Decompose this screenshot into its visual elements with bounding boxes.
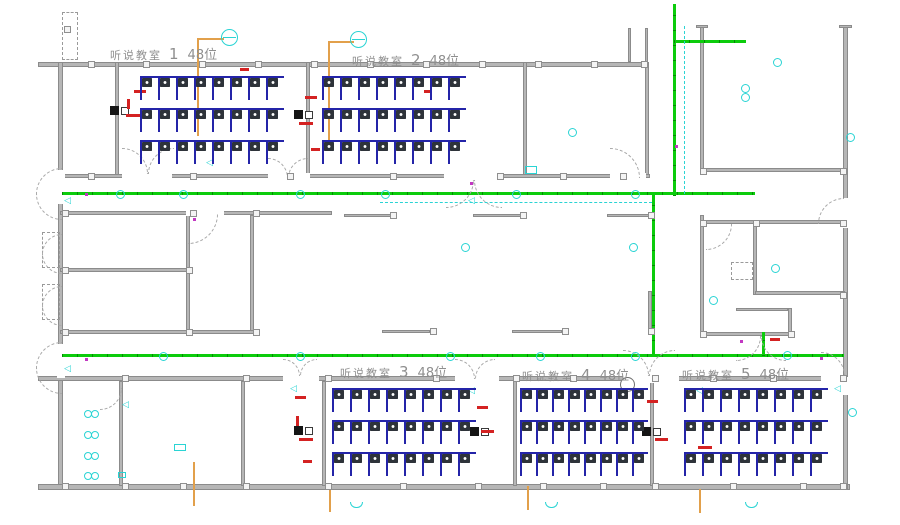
chair-icon <box>794 390 804 399</box>
column-marker <box>641 61 648 68</box>
wall <box>115 62 119 178</box>
desk-unit <box>536 390 550 412</box>
chair-icon <box>232 110 242 119</box>
desk-unit <box>738 454 754 476</box>
chair-icon <box>178 78 188 87</box>
column-marker <box>648 328 655 335</box>
desk-row <box>684 388 828 412</box>
desk-unit <box>194 142 210 164</box>
room-name: 听说教室 <box>110 49 162 62</box>
desk-unit <box>458 454 474 476</box>
detector-icon <box>296 190 305 199</box>
column-marker <box>253 210 260 217</box>
column-marker <box>535 61 542 68</box>
chair-icon <box>432 142 442 151</box>
column-marker <box>190 210 197 217</box>
door-swing-arc <box>706 224 732 250</box>
desk-row <box>140 76 284 100</box>
chair-icon <box>794 454 804 463</box>
chair-icon <box>352 454 362 463</box>
chair-icon <box>722 454 732 463</box>
door-swing-arc <box>475 359 495 379</box>
desk-unit <box>358 142 374 164</box>
chair-icon <box>406 390 416 399</box>
column-marker <box>390 173 397 180</box>
desk-unit <box>552 390 566 412</box>
desk-unit <box>600 390 614 412</box>
chair-icon <box>722 390 732 399</box>
door-triangle-icon: ◁ <box>64 364 74 374</box>
room-seats: 48位 <box>600 369 630 384</box>
desk-unit <box>404 390 420 412</box>
column-marker <box>325 375 332 382</box>
circuit-annotation-mark <box>296 416 299 426</box>
chair-icon <box>460 390 470 399</box>
desk-unit <box>322 110 338 132</box>
hinge-dot <box>820 357 823 360</box>
chair-icon <box>570 422 580 431</box>
desk-row <box>520 420 648 444</box>
column-marker <box>62 329 69 336</box>
desk-unit <box>394 110 410 132</box>
chair-icon <box>758 454 768 463</box>
chair-icon <box>352 390 362 399</box>
desk-unit <box>368 390 384 412</box>
desk-unit <box>412 78 428 100</box>
chair-icon <box>352 422 362 431</box>
desk-row <box>520 452 648 476</box>
circuit-annotation-mark <box>311 148 320 151</box>
desk-unit <box>412 142 428 164</box>
desk-unit <box>774 454 790 476</box>
desk-unit <box>248 78 264 100</box>
chair-icon <box>370 390 380 399</box>
wall <box>38 484 850 490</box>
desk-unit <box>230 78 246 100</box>
desk-unit <box>358 78 374 100</box>
desk-unit <box>340 142 356 164</box>
column-marker <box>600 483 607 490</box>
chair-icon <box>232 142 242 151</box>
door-swing-arc <box>36 194 62 220</box>
desk-unit <box>332 454 348 476</box>
chair-icon <box>522 422 532 431</box>
desk-unit <box>584 390 598 412</box>
wall <box>241 381 245 486</box>
chair-icon <box>704 390 714 399</box>
detector-icon <box>848 408 857 417</box>
chair-icon <box>570 454 580 463</box>
chair-icon <box>586 454 596 463</box>
wall <box>700 25 704 173</box>
desk-unit <box>720 390 736 412</box>
chair-icon <box>722 422 732 431</box>
chair-icon <box>214 142 224 151</box>
wall <box>60 268 188 272</box>
detector-icon <box>536 352 545 361</box>
desk-unit <box>230 110 246 132</box>
desk-unit <box>430 142 446 164</box>
desk-unit <box>386 390 402 412</box>
wire-dashed-line <box>380 202 652 203</box>
chair-icon <box>432 78 442 87</box>
desk-unit <box>810 422 826 444</box>
chair-icon <box>414 142 424 151</box>
desk-unit <box>194 110 210 132</box>
door-triangle-icon: ◁ <box>834 384 844 394</box>
room-seats: 48位 <box>430 54 460 69</box>
detector-icon <box>568 128 577 137</box>
desk-unit <box>176 78 192 100</box>
desk-unit <box>810 454 826 476</box>
desk-unit <box>584 454 598 476</box>
dashed-outline <box>731 262 753 280</box>
chair-icon <box>214 78 224 87</box>
detector-icon <box>446 352 455 361</box>
circuit-annotation-mark <box>647 400 658 403</box>
washbasin-icon <box>91 410 99 418</box>
detector-icon <box>741 93 750 102</box>
column-marker <box>840 292 847 299</box>
chair-icon <box>388 454 398 463</box>
desk-unit <box>368 454 384 476</box>
column-marker <box>513 375 520 382</box>
column-marker <box>62 210 69 217</box>
desk-unit <box>158 142 174 164</box>
desk-unit <box>756 422 772 444</box>
chair-icon <box>324 142 334 151</box>
desk-unit <box>552 454 566 476</box>
chair-icon <box>268 142 278 151</box>
chair-icon <box>414 78 424 87</box>
desk-unit <box>248 110 264 132</box>
arc-icon <box>745 502 758 508</box>
wall-opening <box>283 375 319 383</box>
column-marker <box>64 26 71 33</box>
chair-icon <box>812 454 822 463</box>
detector-icon <box>179 190 188 199</box>
room-number: 3 <box>399 363 411 381</box>
chair-icon <box>370 454 380 463</box>
column-marker <box>62 483 69 490</box>
door-swing-arc <box>474 180 502 208</box>
hinge-dot <box>193 218 196 221</box>
detector-icon <box>629 243 638 252</box>
room-label-3: 听说教室348位 <box>340 362 447 381</box>
desk-unit <box>176 142 192 164</box>
chair-icon <box>142 110 152 119</box>
chair-icon <box>268 110 278 119</box>
column-marker <box>475 483 482 490</box>
desk-row <box>322 76 466 100</box>
desk-unit <box>322 78 338 100</box>
desk-unit <box>340 110 356 132</box>
desk-unit <box>140 110 156 132</box>
desk-unit <box>616 454 630 476</box>
chair-icon <box>406 422 416 431</box>
chair-icon <box>214 110 224 119</box>
detector-icon <box>846 133 855 142</box>
fixture-icon <box>525 166 537 174</box>
hinge-dot <box>470 182 473 185</box>
desk-unit <box>158 78 174 100</box>
desk-unit <box>702 454 718 476</box>
room-label-4: 听说教室448位 <box>522 365 629 384</box>
desk-unit <box>422 390 438 412</box>
distribution-box-icon <box>294 110 303 119</box>
column-marker <box>840 220 847 227</box>
desk-unit <box>368 422 384 444</box>
column-marker <box>255 61 262 68</box>
chair-icon <box>396 78 406 87</box>
desk-unit <box>792 390 808 412</box>
chair-icon <box>442 422 452 431</box>
chair-icon <box>250 78 260 87</box>
column-marker <box>430 328 437 335</box>
chair-icon <box>618 422 628 431</box>
circuit-annotation-mark <box>655 438 668 441</box>
desk-row <box>520 388 648 412</box>
chair-icon <box>460 422 470 431</box>
column-marker <box>253 329 260 336</box>
conduit-line <box>699 489 701 513</box>
wall <box>382 330 430 333</box>
chair-icon <box>396 142 406 151</box>
column-marker <box>190 173 197 180</box>
desk-unit <box>440 454 456 476</box>
wall <box>513 381 517 486</box>
column-marker <box>560 173 567 180</box>
cable-tray-line <box>673 4 676 196</box>
chair-icon <box>342 78 352 87</box>
circuit-annotation-mark <box>303 460 312 463</box>
desk-unit <box>194 78 210 100</box>
desk-unit <box>632 422 646 444</box>
desk-unit <box>430 110 446 132</box>
wall <box>344 214 392 217</box>
desk-unit <box>684 422 700 444</box>
hinge-dot <box>740 340 743 343</box>
desk-unit <box>412 110 428 132</box>
desk-unit <box>792 422 808 444</box>
door-triangle-icon: ◁ <box>122 400 132 410</box>
door-swing-arc <box>42 254 62 274</box>
room-number: 2 <box>411 51 423 69</box>
wall <box>843 25 848 489</box>
room-name: 听说教室 <box>352 55 404 68</box>
column-marker <box>122 375 129 382</box>
desk-unit <box>386 422 402 444</box>
desk-unit <box>248 142 264 164</box>
circuit-annotation-mark <box>240 68 249 71</box>
desk-unit <box>458 390 474 412</box>
column-marker <box>540 483 547 490</box>
chair-icon <box>414 110 424 119</box>
detector-icon <box>159 352 168 361</box>
chair-icon <box>554 422 564 431</box>
detector-icon <box>512 190 521 199</box>
circuit-annotation-mark <box>299 438 313 441</box>
column-marker <box>652 375 659 382</box>
chair-icon <box>342 142 352 151</box>
column-marker <box>186 267 193 274</box>
room-label-1: 听说教室148位 <box>110 44 217 63</box>
desk-unit <box>394 142 410 164</box>
hinge-dot <box>85 358 88 361</box>
detector-icon <box>631 352 640 361</box>
column-marker <box>62 267 69 274</box>
chair-icon <box>378 78 388 87</box>
desk-unit <box>536 454 550 476</box>
wall <box>607 214 652 217</box>
detector-icon <box>631 190 640 199</box>
meter-box-icon <box>305 111 313 119</box>
chair-icon <box>740 390 750 399</box>
chair-icon <box>232 78 242 87</box>
chair-icon <box>424 422 434 431</box>
washbasin-icon <box>91 452 99 460</box>
column-marker <box>800 483 807 490</box>
room-name: 听说教室 <box>340 367 392 380</box>
chair-icon <box>142 142 152 151</box>
chair-icon <box>586 390 596 399</box>
desk-unit <box>584 422 598 444</box>
chair-icon <box>618 454 628 463</box>
chair-icon <box>812 422 822 431</box>
chair-icon <box>388 422 398 431</box>
detector-icon <box>741 84 750 93</box>
column-marker <box>591 61 598 68</box>
desk-unit <box>158 110 174 132</box>
wall <box>736 308 788 311</box>
column-marker <box>840 168 847 175</box>
chair-icon <box>396 110 406 119</box>
desk-unit <box>350 390 366 412</box>
detector-icon <box>461 243 470 252</box>
chair-icon <box>360 110 370 119</box>
desk-unit <box>810 390 826 412</box>
chair-icon <box>424 390 434 399</box>
chair-icon <box>268 78 278 87</box>
column-marker <box>620 173 627 180</box>
washbasin-icon <box>91 431 99 439</box>
door-triangle-icon: ◁ <box>290 384 300 394</box>
chair-icon <box>554 390 564 399</box>
column-marker <box>390 212 397 219</box>
desk-unit <box>702 390 718 412</box>
column-marker <box>400 483 407 490</box>
wall <box>755 291 845 295</box>
column-marker <box>88 61 95 68</box>
desk-unit <box>340 78 356 100</box>
room-name: 听说教室 <box>522 370 574 383</box>
room-seats: 48位 <box>188 48 218 63</box>
desk-unit <box>332 422 348 444</box>
desk-unit <box>212 142 228 164</box>
chair-icon <box>450 110 460 119</box>
room-label-5: 听说教室548位 <box>682 364 789 383</box>
desk-unit <box>266 78 282 100</box>
chair-icon <box>360 78 370 87</box>
chair-icon <box>370 422 380 431</box>
chair-icon <box>740 422 750 431</box>
floor-plan: 听说教室148位 听说教室248位 听说教室348位 听说教室448位 听说教室… <box>0 0 900 525</box>
wall <box>700 215 704 336</box>
chair-icon <box>634 454 644 463</box>
desk-unit <box>600 454 614 476</box>
desk-row <box>684 452 828 476</box>
chair-icon <box>432 110 442 119</box>
chair-icon <box>160 110 170 119</box>
meter-box-icon <box>305 427 313 435</box>
wire-dashed-line <box>684 26 685 194</box>
desk-unit <box>394 78 410 100</box>
desk-row <box>332 388 476 412</box>
desk-unit <box>774 422 790 444</box>
chair-icon <box>686 390 696 399</box>
chair-icon <box>442 390 452 399</box>
desk-unit <box>702 422 718 444</box>
circuit-annotation-mark <box>477 406 488 409</box>
desk-unit <box>448 142 464 164</box>
desk-row <box>332 452 476 476</box>
chair-icon <box>196 78 206 87</box>
detector-icon <box>783 351 792 360</box>
chair-icon <box>538 454 548 463</box>
desk-unit <box>350 454 366 476</box>
chair-icon <box>794 422 804 431</box>
wall <box>523 62 527 178</box>
room-seats: 48位 <box>760 368 790 383</box>
circuit-annotation-mark <box>299 122 313 125</box>
hinge-dot <box>85 193 88 196</box>
desk-unit <box>536 422 550 444</box>
desk-unit <box>684 454 700 476</box>
chair-icon <box>378 110 388 119</box>
column-marker <box>88 173 95 180</box>
desk-unit <box>386 454 402 476</box>
chair-icon <box>538 390 548 399</box>
desk-unit <box>792 454 808 476</box>
detector-icon <box>773 58 782 67</box>
door-swing-arc <box>42 306 62 326</box>
desk-unit <box>774 390 790 412</box>
column-marker <box>287 173 294 180</box>
chair-icon <box>758 390 768 399</box>
desk-unit <box>616 422 630 444</box>
desk-row <box>684 420 828 444</box>
desk-unit <box>568 390 582 412</box>
chair-icon <box>634 390 644 399</box>
chair-icon <box>704 422 714 431</box>
desk-unit <box>140 142 156 164</box>
dashed-outline <box>62 12 78 60</box>
desk-unit <box>520 390 534 412</box>
chair-icon <box>424 454 434 463</box>
desk-unit <box>520 422 534 444</box>
column-marker <box>243 483 250 490</box>
column-marker <box>648 212 655 219</box>
chair-icon <box>450 78 460 87</box>
clock-icon <box>221 29 238 46</box>
hinge-dot <box>675 145 678 148</box>
chair-icon <box>178 110 188 119</box>
room-number: 5 <box>741 365 753 383</box>
column-marker <box>180 483 187 490</box>
detector-icon <box>771 264 780 273</box>
chair-icon <box>178 142 188 151</box>
conduit-line <box>527 486 529 510</box>
